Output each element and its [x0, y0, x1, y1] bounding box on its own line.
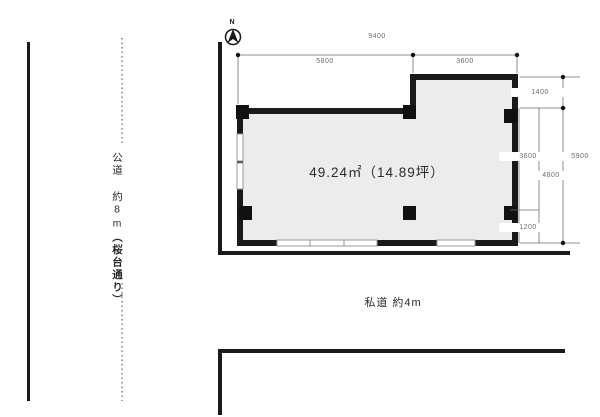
public-road-name-text: （桜台通り）: [111, 232, 123, 307]
dim-right-inner-lower: 1200: [499, 223, 557, 232]
public-road-label: 公道 約8m（桜台通り）: [108, 152, 126, 307]
floor-area-label: 49.24㎡（14.89坪）: [227, 161, 527, 181]
private-road-far-boundary-line: [220, 351, 565, 415]
pillar-bottom-left: [239, 206, 252, 220]
pillar-top-left: [236, 105, 249, 119]
floor-plan-page: N 9400 5800 3600 1400 3600 4800 1200 590…: [0, 0, 600, 417]
window-marking-bottom-right: [437, 240, 475, 246]
window-marking-left-upper: [237, 134, 243, 161]
dim-top-right-segment: 3600: [435, 57, 495, 66]
pillar-top-right: [504, 109, 517, 123]
pillar-bottom-right: [504, 206, 517, 220]
pillar-bottom-middle: [403, 206, 416, 220]
dim-right-upper: 1400: [511, 88, 569, 97]
dim-top-left-segment: 5800: [295, 57, 355, 66]
north-arrow-icon: [226, 29, 241, 45]
public-road-width-text: 公道 約8m: [111, 152, 123, 232]
private-road-label: 私道 約4m: [313, 294, 473, 310]
window-marking-bottom-left: [277, 240, 377, 246]
dim-right-inner-upper: 3600: [499, 152, 557, 161]
dim-right-total: 5900: [551, 152, 600, 161]
dim-right-middle: 4800: [522, 171, 580, 180]
pillar-top-middle: [403, 105, 416, 119]
building-outline: [240, 77, 515, 243]
north-label: N: [222, 19, 242, 26]
dim-top-total: 9400: [347, 32, 407, 41]
